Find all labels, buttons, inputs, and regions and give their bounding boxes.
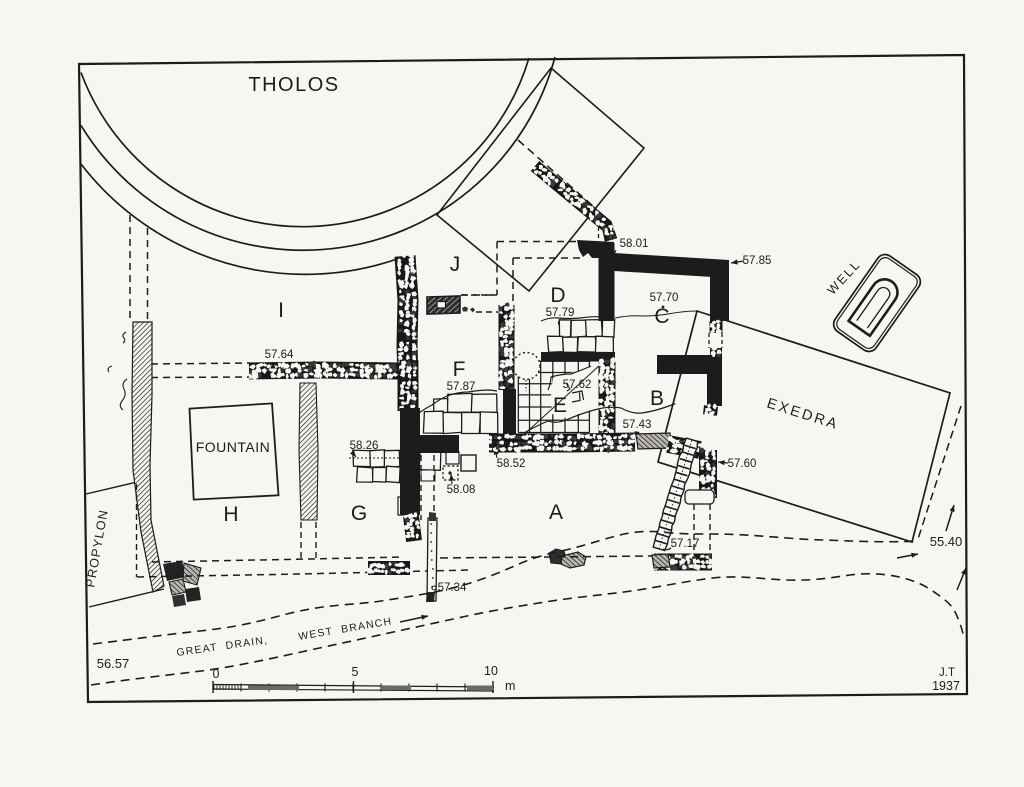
svg-text:FOUNTAIN: FOUNTAIN [196,439,271,455]
svg-text:H: H [223,503,238,526]
svg-text:58.26: 58.26 [350,440,379,452]
svg-text:58.01: 58.01 [620,238,649,250]
svg-text:10: 10 [484,664,498,678]
svg-text:57.43: 57.43 [623,419,652,431]
svg-text:THOLOS: THOLOS [248,74,339,96]
svg-text:J: J [450,253,461,276]
svg-text:A: A [549,501,563,524]
svg-text:I: I [278,299,284,322]
svg-text:58.08: 58.08 [447,484,476,496]
svg-text:58.52: 58.52 [497,458,526,470]
svg-text:56.57: 56.57 [97,656,130,671]
svg-text:C: C [654,305,669,328]
svg-text:B: B [650,387,664,410]
svg-text:55.40: 55.40 [930,534,963,549]
svg-text:57.85: 57.85 [743,255,772,267]
svg-text:57.17: 57.17 [671,538,700,550]
svg-text:0: 0 [213,667,220,681]
svg-text:1937: 1937 [932,679,960,693]
svg-text:57.79: 57.79 [546,307,575,319]
svg-text:m: m [505,679,515,693]
svg-text:D: D [550,284,565,307]
svg-text:F: F [453,358,466,381]
svg-text:57.70: 57.70 [650,292,679,304]
svg-text:57.60: 57.60 [728,458,757,470]
svg-text:57.64: 57.64 [265,349,294,361]
svg-text:G: G [351,502,367,525]
svg-text:5: 5 [352,665,359,679]
svg-text:J.T: J.T [939,667,955,679]
